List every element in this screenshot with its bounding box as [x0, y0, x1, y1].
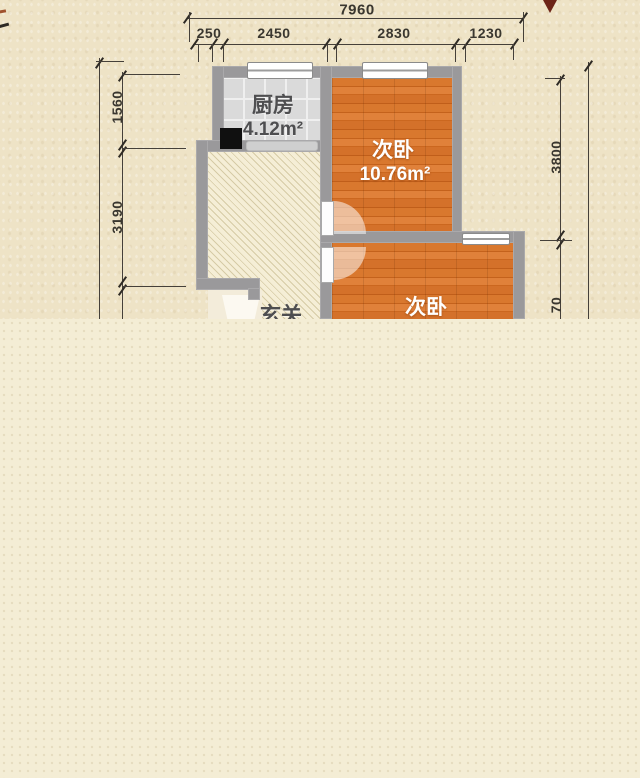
- bedroom-bottom-window: [462, 233, 510, 245]
- dim-label-left-0: 1560: [109, 90, 125, 123]
- extension-line: [327, 44, 328, 62]
- extension-line: [465, 44, 466, 62]
- extension-line: [122, 286, 186, 287]
- floorplan-canvas: 7960 250 2450 2830 1230 1560: [0, 0, 640, 319]
- dim-label-top-2: 2830: [377, 25, 410, 41]
- kitchen-sliding-door: [246, 141, 318, 151]
- bedroom-top-door: [321, 201, 334, 236]
- dim-label-top-0: 250: [197, 25, 222, 41]
- wall-bedroom-top-right: [452, 66, 462, 243]
- floorplan-image: 7960 250 2450 2830 1230 1560: [0, 0, 640, 778]
- edge-mark-dark: [0, 23, 9, 29]
- extension-line: [122, 74, 180, 75]
- bedroom-top-area: 10.76m²: [360, 164, 431, 186]
- dim-label-right-1: 70: [548, 297, 564, 314]
- dim-label-top-3: 1230: [469, 25, 502, 41]
- hall-label: 玄关: [260, 299, 302, 319]
- kitchen-window: [247, 62, 313, 79]
- extension-line: [513, 44, 514, 60]
- extension-line: [545, 78, 565, 79]
- extension-line: [455, 44, 456, 62]
- blank-background: [0, 319, 640, 778]
- wall-bedroom-bottom-right: [513, 231, 525, 319]
- bedroom-bottom-label: 次卧: [405, 291, 447, 319]
- extension-line: [540, 240, 572, 241]
- dim-label-left-1: 3190: [109, 200, 125, 233]
- kitchen-area: 4.12m²: [243, 119, 303, 141]
- bedroom-top-label: 次卧: [372, 134, 414, 164]
- dim-label-right-0: 3800: [548, 140, 564, 173]
- kitchen-appliance-icon: [220, 128, 242, 149]
- dimension-line: [560, 76, 561, 319]
- dim-label-top-1: 2450: [257, 25, 290, 41]
- extension-line: [96, 61, 124, 62]
- edge-mark-red: [0, 9, 6, 13]
- bedroom-top-window: [362, 62, 428, 79]
- wall-hall-left: [196, 140, 208, 290]
- extension-line: [336, 44, 337, 62]
- bedroom-bottom-door: [321, 247, 334, 283]
- extension-line: [212, 44, 213, 62]
- extension-line: [223, 44, 224, 62]
- extension-line: [198, 44, 199, 62]
- extension-line: [523, 12, 524, 42]
- extension-line: [122, 148, 186, 149]
- kitchen-label: 厨房: [252, 89, 294, 119]
- wall-entry-corner: [248, 288, 260, 300]
- compass-north-icon: [543, 0, 557, 13]
- dimension-line: [588, 62, 589, 319]
- dimension-line: [99, 58, 100, 319]
- extension-line: [189, 12, 190, 42]
- dim-label-top-total: 7960: [339, 2, 374, 19]
